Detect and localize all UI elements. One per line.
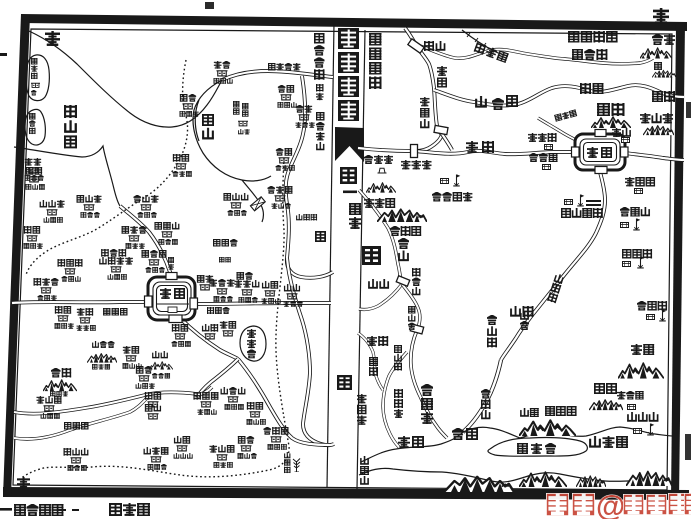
svg-text:@: @ (596, 490, 625, 519)
